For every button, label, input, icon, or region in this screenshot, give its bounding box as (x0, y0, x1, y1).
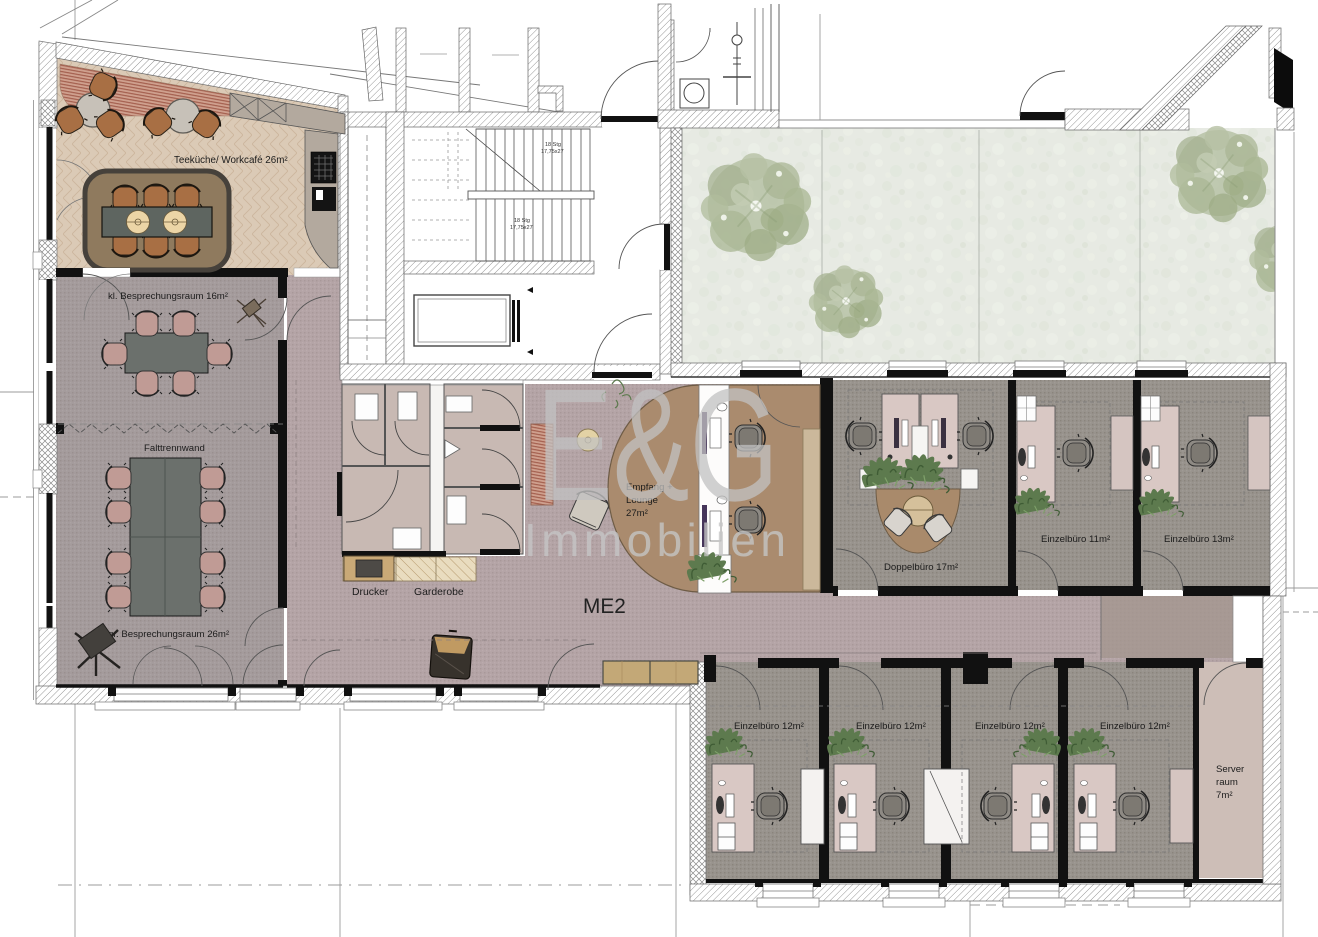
svg-text:Drucker: Drucker (352, 587, 389, 598)
svg-text:17,75x27: 17,75x27 (541, 149, 564, 155)
svg-text:7m²: 7m² (1216, 790, 1233, 801)
svg-text:18 Stg: 18 Stg (514, 218, 530, 224)
svg-text:raum: raum (1216, 777, 1238, 788)
svg-text:gr. Besprechungsraum 26m²: gr. Besprechungsraum 26m² (108, 629, 230, 640)
svg-text:Einzelbüro 12m²: Einzelbüro 12m² (856, 721, 927, 732)
svg-text:Einzelbüro 12m²: Einzelbüro 12m² (1100, 721, 1171, 732)
svg-text:E&G: E&G (536, 355, 779, 534)
svg-text:18 Stg: 18 Stg (545, 142, 561, 148)
svg-text:Einzelbüro 13m²: Einzelbüro 13m² (1164, 534, 1235, 545)
svg-text:17,75x27: 17,75x27 (510, 225, 533, 231)
svg-text:Einzelbüro 12m²: Einzelbüro 12m² (975, 721, 1046, 732)
svg-text:Einzelbüro 11m²: Einzelbüro 11m² (1041, 534, 1111, 545)
svg-text:kl. Besprechungsraum 16m²: kl. Besprechungsraum 16m² (108, 291, 229, 302)
svg-text:Garderobe: Garderobe (414, 587, 464, 598)
svg-text:Doppelbüro 17m²: Doppelbüro 17m² (884, 562, 959, 573)
svg-text:Server: Server (1216, 764, 1245, 775)
svg-text:Einzelbüro 12m²: Einzelbüro 12m² (734, 721, 805, 732)
svg-text:Teeküche/ Workcafé 26m²: Teeküche/ Workcafé 26m² (174, 155, 288, 166)
svg-text:Falttrennwand: Falttrennwand (144, 443, 205, 454)
svg-text:ME2: ME2 (583, 595, 626, 618)
